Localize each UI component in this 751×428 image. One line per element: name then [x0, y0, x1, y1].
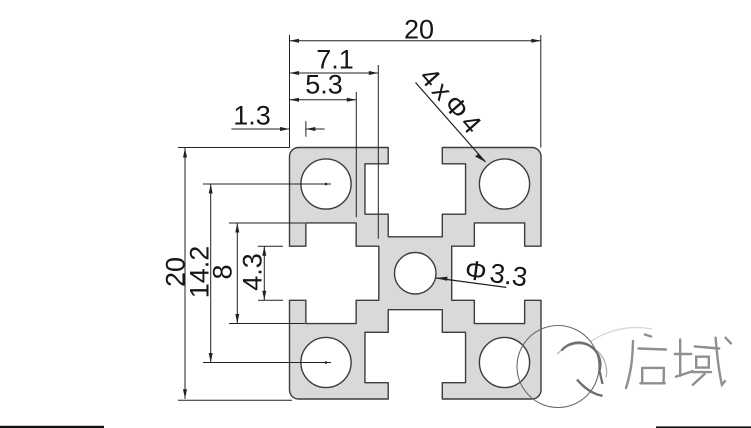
svg-text:4xΦ4: 4xΦ4 — [414, 62, 490, 143]
svg-text:5.3: 5.3 — [305, 70, 343, 100]
svg-text:8: 8 — [208, 264, 238, 279]
svg-text:Φ3.3: Φ3.3 — [463, 255, 529, 293]
svg-text:20: 20 — [404, 15, 434, 45]
svg-text:1.3: 1.3 — [233, 101, 271, 131]
svg-text:4.3: 4.3 — [238, 253, 268, 291]
